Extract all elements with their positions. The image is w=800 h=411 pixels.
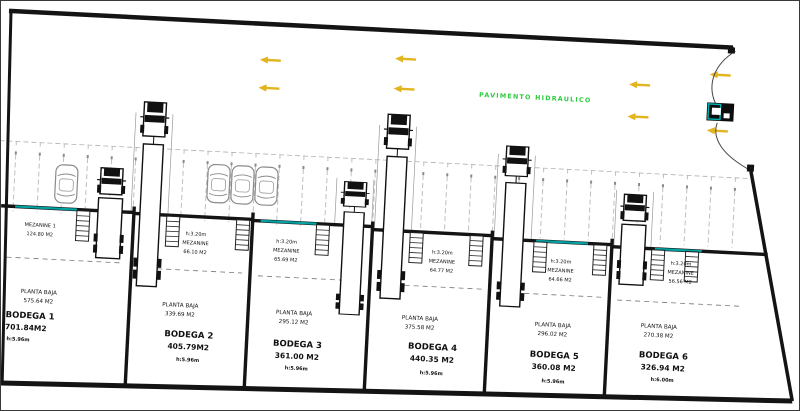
stairs-icon xyxy=(592,245,607,276)
planta-baja-area: 375.58 M2 xyxy=(404,324,434,331)
stairs-icon xyxy=(315,225,330,256)
planta-baja-label: PLANTA BAJA xyxy=(402,315,439,323)
unit-name: BODEGA 1 xyxy=(5,310,55,322)
unit-name: BODEGA 2 xyxy=(164,329,214,341)
unit-name: BODEGA 3 xyxy=(273,339,323,351)
planta-baja-area: 339.69 M2 xyxy=(165,311,195,318)
mezzanine-height: h:3.20m xyxy=(185,231,206,238)
bodega-1-labels: MEZANINE 1 124.80 M2 PLANTA BAJA 575.64 … xyxy=(4,221,60,344)
unit-area: 361.00 M2 xyxy=(275,351,320,362)
mezzanine-label: MEZANINE 1 xyxy=(24,222,55,230)
guard-booth xyxy=(706,102,734,121)
arrow-left-icon xyxy=(395,55,416,63)
planta-baja-area: 296.02 M2 xyxy=(537,331,567,338)
planta-baja-label: PLANTA BAJA xyxy=(162,302,199,310)
pavement-label: PAVIMENTO HIDRAULICO xyxy=(479,91,592,105)
unit-area: 701.84M2 xyxy=(5,322,47,333)
unit-height: h:5.96m xyxy=(419,370,442,377)
mezzanine-label: MEZANINE xyxy=(273,248,300,255)
unit-height: h:5.96m xyxy=(6,336,29,343)
car-icon xyxy=(207,164,231,203)
bodega-3-labels: h:3.20m MEZANINE 65.69 M2 PLANTA BAJA 29… xyxy=(267,239,327,374)
unit-height: h:5.96m xyxy=(541,378,564,385)
bodega-5-labels: h:3.20m MEZANINE 64.66 M2 PLANTA BAJA 29… xyxy=(528,258,583,386)
mezzanine-area: 64.77 M2 xyxy=(430,268,454,275)
stairs-icon xyxy=(235,220,250,251)
car-icon xyxy=(231,165,255,204)
planta-baja-area: 295.12 M2 xyxy=(279,319,309,326)
site-plan-canvas: PAVIMENTO HIDRAULICO MEZANINE 1 124.80 M… xyxy=(1,1,800,411)
unit-area: 360.08 M2 xyxy=(531,362,576,373)
mezzanine-height: h:3.20m xyxy=(550,259,571,266)
mezzanine-label: MEZANINE xyxy=(667,270,694,277)
arrow-left-icon xyxy=(627,113,648,121)
arrow-left-icon xyxy=(260,56,281,64)
arrow-left-icon xyxy=(707,127,728,135)
planta-baja-label: PLANTA BAJA xyxy=(641,323,678,331)
arrow-left-icon xyxy=(258,84,279,92)
stairs-icon xyxy=(165,216,180,247)
planta-baja-area: 575.64 M2 xyxy=(23,298,53,305)
planta-baja-label: PLANTA BAJA xyxy=(535,322,572,330)
mezzanine-label: MEZANINE xyxy=(547,267,574,274)
mezzanine-height: h:3.20m xyxy=(432,250,453,257)
arrow-left-icon xyxy=(393,85,414,93)
planta-baja-area: 270.38 M2 xyxy=(643,332,673,339)
mezzanine-area: 64.66 M2 xyxy=(548,277,572,284)
mezzanine-label: MEZANINE xyxy=(182,240,209,247)
unit-area: 326.94 M2 xyxy=(640,362,685,373)
unit-name: BODEGA 4 xyxy=(408,342,458,354)
arrow-left-icon xyxy=(629,81,650,89)
bodega-4-labels: h:3.20m MEZANINE 64.77 M2 PLANTA BAJA 37… xyxy=(399,248,462,378)
unit-name: BODEGA 6 xyxy=(639,350,689,362)
mezzanine-label: MEZANINE xyxy=(428,258,455,265)
stairs-icon xyxy=(409,232,424,263)
unit-name: BODEGA 5 xyxy=(530,350,580,362)
stairs-icon xyxy=(650,250,665,281)
unit-height: h:5.96m xyxy=(285,365,308,372)
planta-baja-label: PLANTA BAJA xyxy=(21,289,58,297)
mezzanine-height: h:3.20m xyxy=(276,239,297,246)
arrow-left-icon xyxy=(710,71,731,79)
planta-baja-label: PLANTA BAJA xyxy=(276,310,313,318)
mezzanine-area: 124.80 M2 xyxy=(26,231,53,238)
bodega-2-labels: h:3.20m MEZANINE 66.10 M2 PLANTA BAJA 33… xyxy=(159,230,218,364)
unit-height: h:5.96m xyxy=(176,357,199,364)
stairs-icon xyxy=(75,211,90,242)
entrance-gate xyxy=(704,46,760,171)
floor-plan-sheet: PAVIMENTO HIDRAULICO MEZANINE 1 124.80 M… xyxy=(0,0,800,411)
car-icon xyxy=(54,164,78,203)
mezzanine-area: 56.56 M2 xyxy=(668,279,692,286)
rotated-plan: PAVIMENTO HIDRAULICO MEZANINE 1 124.80 M… xyxy=(1,11,800,411)
mezzanine-area: 66.10 M2 xyxy=(183,249,207,256)
car-icon xyxy=(255,167,279,206)
unit-height: h:6.00m xyxy=(650,377,673,384)
unit-area: 440.35 M2 xyxy=(410,354,455,365)
stairs-icon xyxy=(469,236,484,267)
mezzanine-area: 65.69 M2 xyxy=(274,257,298,264)
gate-leaf-arc xyxy=(711,53,732,106)
unit-area: 405.79M2 xyxy=(167,341,209,352)
stairs-icon xyxy=(532,242,547,273)
mezzanine-height: h:3.20m xyxy=(670,261,691,268)
